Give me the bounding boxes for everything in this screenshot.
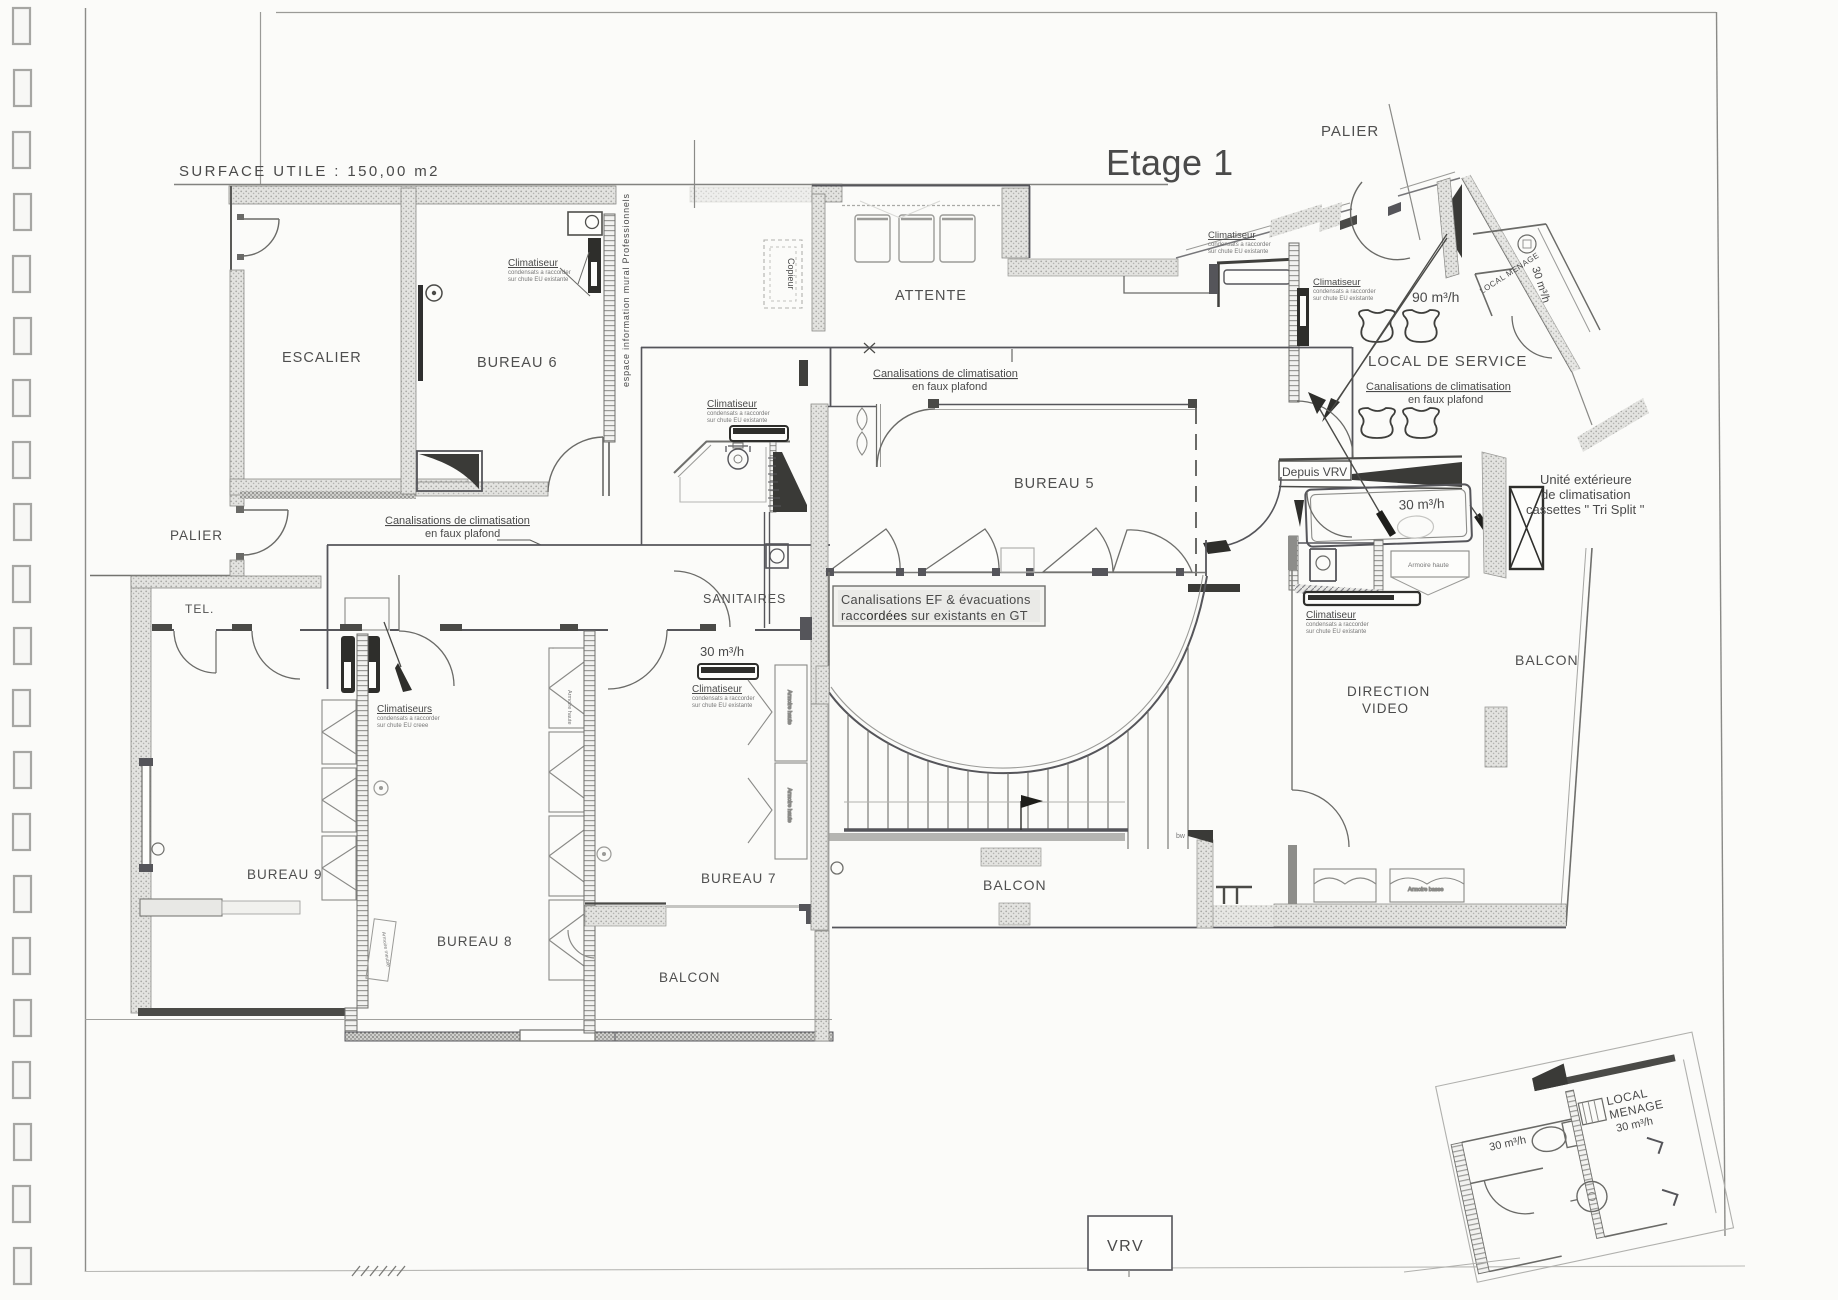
svg-text:sur chute EU existante: sur chute EU existante	[1313, 296, 1374, 302]
svg-text:sur chute EU existante: sur chute EU existante	[508, 277, 569, 283]
svg-text:Armoire haute: Armoire haute	[786, 788, 792, 823]
svg-text:ATTENTE: ATTENTE	[895, 288, 967, 304]
svg-text:en faux plafond: en faux plafond	[912, 381, 987, 393]
svg-text:Climatiseur: Climatiseur	[707, 399, 758, 410]
svg-text:Armoire haute: Armoire haute	[786, 690, 792, 725]
svg-text:PALIER: PALIER	[1321, 123, 1379, 140]
svg-text:TEL.: TEL.	[185, 602, 214, 616]
svg-text:DIRECTION: DIRECTION	[1347, 684, 1430, 699]
svg-text:BUREAU 5: BUREAU 5	[1014, 476, 1095, 492]
svg-text:en faux plafond: en faux plafond	[1408, 394, 1483, 406]
svg-text:Etage 1: Etage 1	[1106, 142, 1234, 183]
svg-text:ESCALIER: ESCALIER	[282, 350, 362, 366]
svg-text:Depuis VRV: Depuis VRV	[1282, 465, 1347, 479]
svg-text:espace information mural Profe: espace information mural Professionnels	[621, 193, 631, 387]
svg-text:BALCON: BALCON	[659, 970, 721, 985]
svg-text:Unité extérieure: Unité extérieure	[1540, 472, 1632, 487]
svg-text:bw: bw	[1176, 833, 1186, 840]
svg-text:90 m³/h: 90 m³/h	[1412, 289, 1459, 305]
svg-text:Copieur: Copieur	[786, 258, 796, 290]
svg-text:BUREAU 7: BUREAU 7	[701, 871, 777, 886]
svg-text:de climatisation: de climatisation	[1541, 487, 1631, 502]
svg-text:Canalisations de climatisation: Canalisations de climatisation	[1366, 381, 1511, 393]
svg-text:30 m³/h: 30 m³/h	[1398, 496, 1444, 513]
svg-text:Climatiseur: Climatiseur	[1306, 610, 1357, 621]
svg-text:Armoire haute: Armoire haute	[1408, 562, 1449, 569]
svg-text:PALIER: PALIER	[170, 528, 223, 543]
svg-text:Climatiseur: Climatiseur	[508, 258, 559, 269]
svg-text:condensats a raccorder: condensats a raccorder	[707, 411, 770, 417]
svg-text:Canalisations EF & évacuations: Canalisations EF & évacuations	[841, 592, 1031, 607]
svg-text:Climatiseur: Climatiseur	[1208, 230, 1256, 241]
svg-text:Climatiseur: Climatiseur	[692, 684, 743, 695]
svg-text:condensats a raccorder: condensats a raccorder	[692, 696, 755, 702]
svg-text:sur chute EU existante: sur chute EU existante	[707, 418, 768, 424]
svg-text:Climatiseurs: Climatiseurs	[377, 704, 432, 715]
svg-text:SANITAIRES: SANITAIRES	[703, 592, 786, 606]
svg-text:Canalisations de climatisation: Canalisations de climatisation	[873, 368, 1018, 380]
svg-text:en faux plafond: en faux plafond	[425, 528, 500, 540]
svg-text:VRV: VRV	[1107, 1238, 1144, 1255]
svg-text:Armoire haute: Armoire haute	[566, 690, 572, 725]
svg-text:sur chute EU existante: sur chute EU existante	[1306, 629, 1367, 635]
svg-text:sur chute EU creee: sur chute EU creee	[377, 723, 429, 729]
svg-text:condensats a raccorder: condensats a raccorder	[508, 270, 571, 276]
svg-text:Canalisations de climatisation: Canalisations de climatisation	[385, 515, 530, 527]
svg-text:LOCAL DE SERVICE: LOCAL DE SERVICE	[1368, 353, 1527, 370]
svg-text:BUREAU 9: BUREAU 9	[247, 867, 323, 882]
svg-text:BUREAU 8: BUREAU 8	[437, 934, 513, 949]
svg-text:sur chute EU existante: sur chute EU existante	[692, 703, 753, 709]
svg-text:condensats a raccorder: condensats a raccorder	[1313, 289, 1376, 295]
svg-text:VIDEO: VIDEO	[1362, 701, 1409, 716]
svg-text:Climatiseur: Climatiseur	[1313, 277, 1361, 288]
svg-text:30 m³/h: 30 m³/h	[700, 644, 744, 659]
svg-text:raccordées sur existants en GT: raccordées sur existants en GT	[841, 608, 1028, 623]
svg-text:condensats a raccorder: condensats a raccorder	[377, 716, 440, 722]
svg-text:sur chute EU existante: sur chute EU existante	[1208, 249, 1269, 255]
svg-text:SURFACE UTILE : 150,00 m2: SURFACE UTILE : 150,00 m2	[179, 163, 440, 180]
svg-text:BUREAU 6: BUREAU 6	[477, 355, 558, 371]
svg-text:cassettes " Tri Split ": cassettes " Tri Split "	[1526, 502, 1645, 517]
svg-text:condensats a raccorder: condensats a raccorder	[1208, 242, 1271, 248]
svg-text:Armoire basse: Armoire basse	[1408, 887, 1443, 893]
svg-text:BALCON: BALCON	[1515, 652, 1579, 668]
svg-text:condensats a raccorder: condensats a raccorder	[1306, 622, 1369, 628]
svg-text:BALCON: BALCON	[983, 877, 1047, 893]
